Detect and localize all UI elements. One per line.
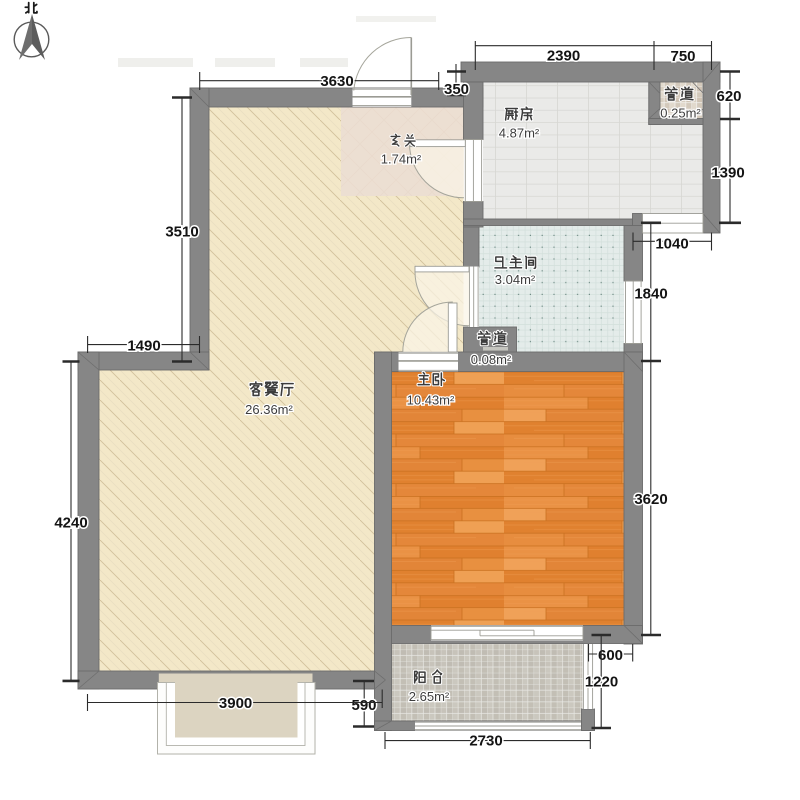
- svg-text:2390: 2390: [547, 48, 580, 65]
- svg-text:26.36m²: 26.36m²: [245, 402, 293, 417]
- svg-text:1840: 1840: [634, 285, 667, 302]
- svg-text:3510: 3510: [165, 223, 198, 240]
- svg-text:3.04m²: 3.04m²: [495, 272, 536, 287]
- svg-text:1220: 1220: [585, 673, 618, 690]
- svg-text:1490: 1490: [127, 337, 160, 354]
- svg-text:590: 590: [351, 697, 376, 714]
- svg-text:1.74m²: 1.74m²: [381, 152, 422, 167]
- svg-text:4.87m²: 4.87m²: [499, 126, 540, 141]
- svg-text:1040: 1040: [655, 235, 688, 252]
- svg-text:0.08m²: 0.08m²: [471, 352, 512, 367]
- svg-text:2730: 2730: [469, 732, 502, 749]
- svg-text:0.25m²: 0.25m²: [660, 106, 701, 121]
- svg-text:4240: 4240: [54, 514, 87, 531]
- svg-text:350: 350: [444, 81, 469, 98]
- svg-text:10.43m²: 10.43m²: [407, 393, 455, 408]
- svg-text:3630: 3630: [320, 73, 353, 90]
- svg-text:750: 750: [670, 48, 695, 65]
- svg-text:3900: 3900: [219, 695, 252, 712]
- svg-text:1390: 1390: [711, 164, 744, 181]
- svg-text:3620: 3620: [634, 491, 667, 508]
- svg-text:620: 620: [716, 88, 741, 105]
- svg-text:2.65m²: 2.65m²: [409, 689, 450, 704]
